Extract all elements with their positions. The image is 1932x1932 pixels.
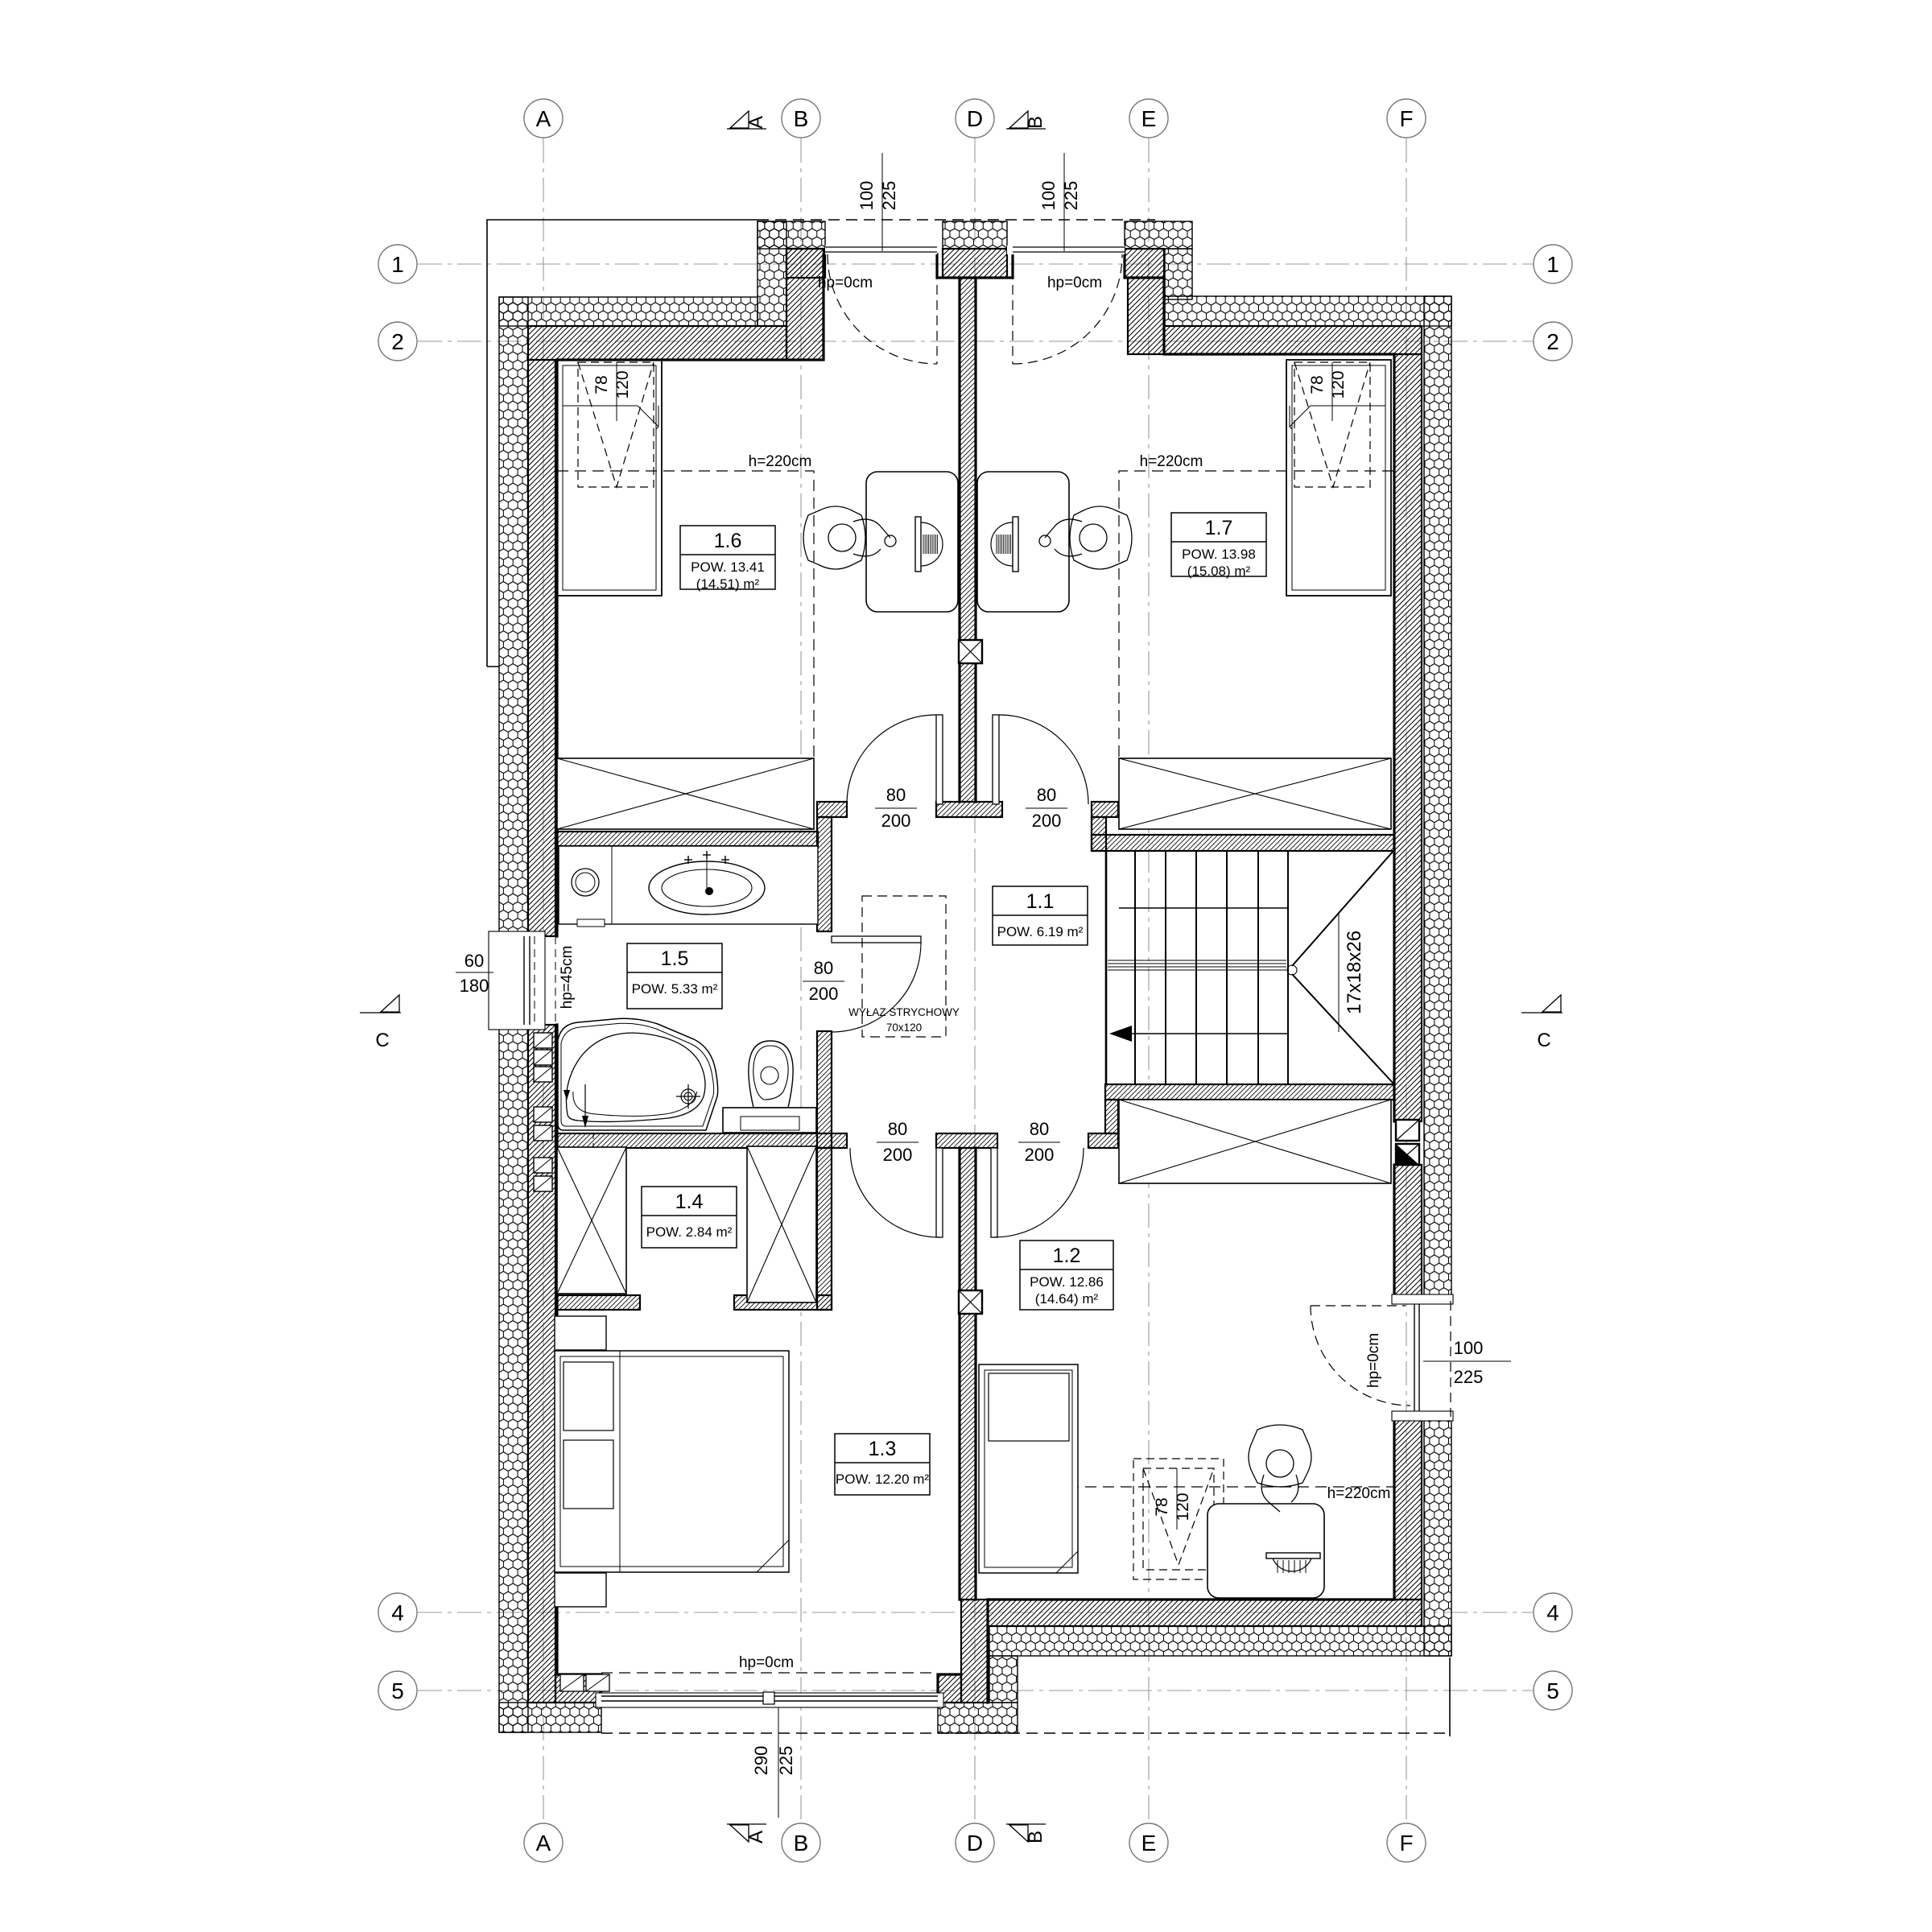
svg-text:(14.51) m²: (14.51) m² <box>696 576 760 592</box>
svg-text:E: E <box>1141 106 1157 131</box>
svg-text:1.4: 1.4 <box>675 1191 704 1213</box>
svg-text:h=220cm: h=220cm <box>1327 1485 1391 1502</box>
svg-text:hp=0cm: hp=0cm <box>739 1654 794 1671</box>
svg-text:POW. 12.20 m²: POW. 12.20 m² <box>836 1472 930 1487</box>
svg-text:A: A <box>745 1831 767 1843</box>
svg-text:C: C <box>375 1030 389 1051</box>
svg-text:(14.64) m²: (14.64) m² <box>1035 1291 1099 1307</box>
svg-text:D: D <box>967 1831 983 1856</box>
svg-text:120: 120 <box>1329 370 1348 398</box>
svg-text:h=220cm: h=220cm <box>749 453 812 470</box>
svg-text:78: 78 <box>1308 375 1327 394</box>
svg-text:200: 200 <box>1025 1145 1055 1165</box>
svg-text:5: 5 <box>1546 1678 1559 1703</box>
svg-text:200: 200 <box>809 984 839 1004</box>
svg-text:1.6: 1.6 <box>714 530 742 552</box>
svg-text:100: 100 <box>1454 1338 1484 1358</box>
svg-text:F: F <box>1399 106 1413 131</box>
svg-text:POW. 13.98: POW. 13.98 <box>1182 547 1256 562</box>
svg-text:4: 4 <box>391 1600 404 1625</box>
svg-text:D: D <box>967 106 983 131</box>
svg-text:1.3: 1.3 <box>869 1438 897 1460</box>
svg-text:225: 225 <box>1454 1367 1484 1387</box>
svg-text:120: 120 <box>1174 1492 1192 1521</box>
svg-text:POW. 5.33 m²: POW. 5.33 m² <box>632 981 718 997</box>
svg-text:200: 200 <box>883 1145 913 1165</box>
svg-text:POW. 2.84 m²: POW. 2.84 m² <box>646 1224 733 1240</box>
svg-text:80: 80 <box>814 958 833 978</box>
svg-text:78: 78 <box>1153 1497 1171 1516</box>
svg-text:2: 2 <box>391 329 404 354</box>
svg-text:1.7: 1.7 <box>1205 517 1233 539</box>
svg-text:1: 1 <box>1546 252 1559 277</box>
svg-text:E: E <box>1141 1831 1157 1856</box>
svg-text:A: A <box>536 1831 551 1856</box>
svg-text:B: B <box>1025 1831 1046 1843</box>
svg-text:POW. 13.41: POW. 13.41 <box>691 559 765 575</box>
svg-text:hp=0cm: hp=0cm <box>1365 1333 1382 1388</box>
svg-text:78: 78 <box>592 375 611 394</box>
svg-text:WYŁAZ STRYCHOWY: WYŁAZ STRYCHOWY <box>848 1006 960 1018</box>
svg-text:C: C <box>1537 1030 1550 1051</box>
svg-text:120: 120 <box>613 370 632 398</box>
svg-text:80: 80 <box>1037 785 1056 805</box>
svg-text:(15.08) m²: (15.08) m² <box>1187 563 1251 579</box>
svg-text:1.5: 1.5 <box>661 947 689 970</box>
svg-text:hp=45cm: hp=45cm <box>559 946 576 1009</box>
svg-text:80: 80 <box>1030 1119 1049 1139</box>
svg-text:1: 1 <box>391 252 404 277</box>
svg-text:B: B <box>794 106 809 131</box>
svg-text:17x18x26: 17x18x26 <box>1344 931 1365 1014</box>
svg-text:290: 290 <box>751 1746 771 1776</box>
svg-text:F: F <box>1399 1831 1413 1856</box>
svg-text:225: 225 <box>879 181 899 211</box>
svg-text:200: 200 <box>1032 811 1062 831</box>
svg-text:POW. 6.19 m²: POW. 6.19 m² <box>997 924 1084 939</box>
svg-text:180: 180 <box>460 976 489 996</box>
svg-text:100: 100 <box>857 181 877 211</box>
svg-text:B: B <box>794 1831 809 1856</box>
svg-text:4: 4 <box>1546 1600 1559 1625</box>
svg-text:1.2: 1.2 <box>1053 1245 1081 1267</box>
svg-text:B: B <box>1025 116 1046 129</box>
svg-text:hp=0cm: hp=0cm <box>1047 275 1102 291</box>
svg-text:70x120: 70x120 <box>886 1022 922 1034</box>
svg-text:225: 225 <box>776 1746 796 1776</box>
svg-text:A: A <box>536 106 551 131</box>
svg-text:200: 200 <box>881 811 911 831</box>
svg-text:h=220cm: h=220cm <box>1140 453 1203 470</box>
svg-text:POW. 12.86: POW. 12.86 <box>1030 1274 1104 1290</box>
svg-text:5: 5 <box>391 1678 404 1703</box>
svg-text:225: 225 <box>1061 181 1081 211</box>
svg-text:2: 2 <box>1546 329 1559 354</box>
svg-text:A: A <box>745 116 767 129</box>
svg-text:80: 80 <box>888 1119 907 1139</box>
svg-text:1.1: 1.1 <box>1026 890 1055 913</box>
svg-text:60: 60 <box>464 951 484 971</box>
svg-text:hp=0cm: hp=0cm <box>818 275 873 291</box>
svg-text:100: 100 <box>1038 181 1059 211</box>
svg-text:80: 80 <box>886 785 906 805</box>
